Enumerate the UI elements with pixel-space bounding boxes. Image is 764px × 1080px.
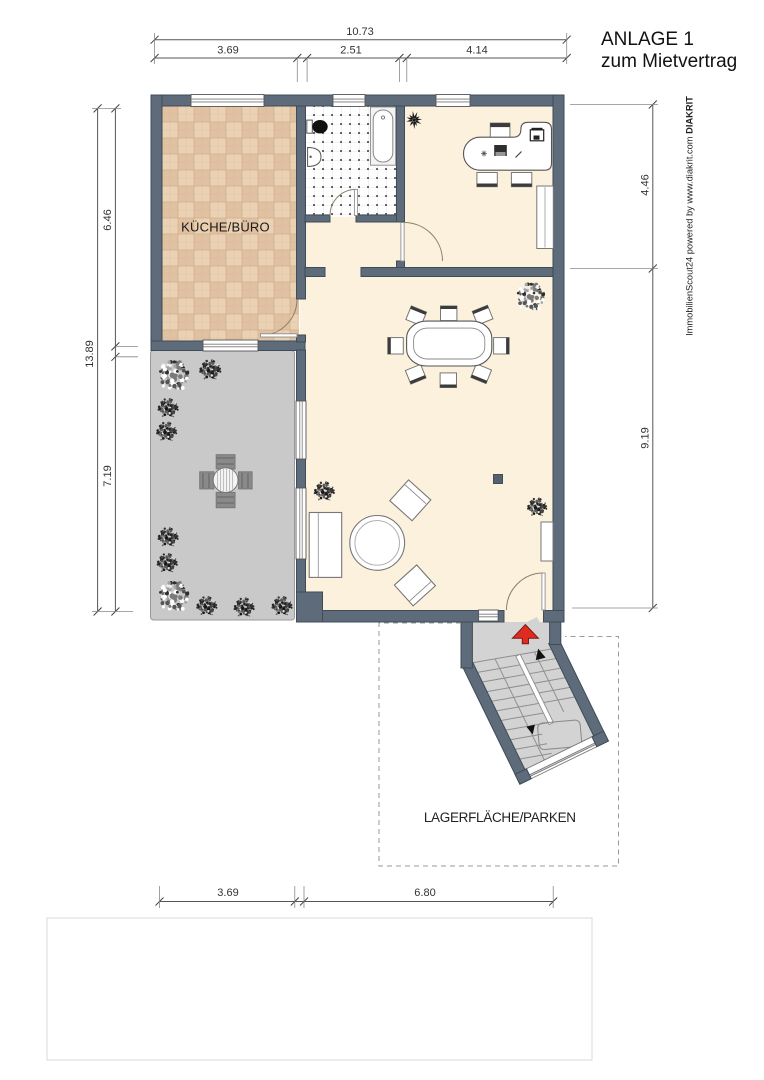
svg-text:3.69: 3.69 [217,887,238,899]
svg-text:6.46: 6.46 [102,209,114,230]
svg-text:4.14: 4.14 [466,45,487,57]
svg-text:13.89: 13.89 [84,340,96,368]
svg-text:KÜCHE/BÜRO: KÜCHE/BÜRO [181,220,270,235]
svg-text:ANLAGE 1: ANLAGE 1 [601,29,694,50]
svg-text:7.19: 7.19 [102,465,114,486]
svg-text:4.46: 4.46 [640,174,652,195]
svg-text:2.51: 2.51 [340,45,361,57]
svg-text:LAGERFLÄCHE/PARKEN: LAGERFLÄCHE/PARKEN [424,810,576,825]
svg-text:10.73: 10.73 [346,26,374,38]
svg-text:zum Mietvertrag: zum Mietvertrag [601,51,737,72]
svg-text:6.80: 6.80 [414,887,435,899]
svg-text:3.69: 3.69 [217,45,238,57]
svg-text:9.19: 9.19 [640,427,652,448]
svg-text:ImmobilienScout24 powered by w: ImmobilienScout24 powered by www.diakrit… [685,96,695,336]
